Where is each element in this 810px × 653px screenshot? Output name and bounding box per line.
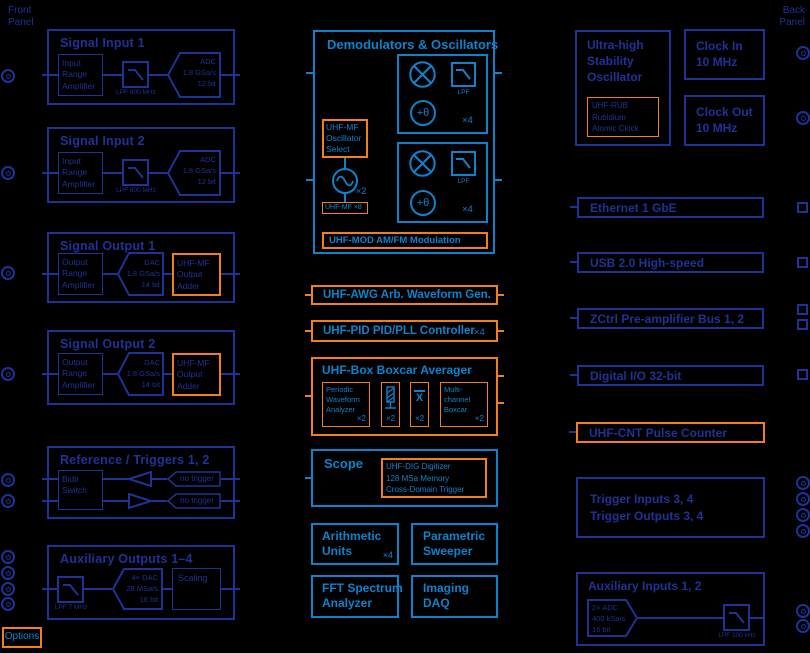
bnc-connector	[796, 604, 810, 618]
bnc-connector	[1, 69, 15, 83]
multichannel-boxcar-label: Multi- channel Boxcar	[444, 385, 470, 414]
bnc-connector	[796, 46, 810, 60]
amplifier-left-icon	[128, 471, 152, 487]
adc-label: ADC 1.8 GSa/s 12 bit	[176, 57, 216, 90]
square-connector	[797, 304, 808, 315]
wire	[42, 273, 58, 275]
wire-stub	[570, 317, 577, 319]
auxiliary-inputs-title: Auxiliary Inputs 1, 2	[588, 579, 701, 593]
wire-stub	[495, 179, 502, 181]
wire	[149, 172, 167, 174]
uhf-dig-label: UHF-DIG Digitizer 128 MSa Memory Cross-D…	[386, 461, 464, 496]
no-trigger-label: no trigger	[177, 474, 217, 483]
lowpass-filter-icon	[723, 604, 750, 631]
mixer-icon	[409, 61, 436, 88]
scope-title: Scope	[324, 456, 363, 471]
uhf-pid-multiplier: ×4	[474, 327, 485, 338]
lpf-600mhz-label: LPF 600 MHz	[108, 187, 164, 194]
lowpass-filter-icon	[122, 61, 149, 88]
mixer-icon	[409, 150, 436, 177]
wire	[152, 478, 167, 480]
wire	[103, 478, 128, 480]
average-multiplier: ×2	[410, 414, 429, 423]
wire-stub	[570, 374, 577, 376]
bnc-connector	[1, 473, 15, 487]
bnc-connector	[1, 566, 15, 580]
input-range-amplifier-label: Input Range Amplifier	[62, 58, 95, 92]
demod-multiplier: ×4	[462, 204, 473, 215]
bnc-connector	[1, 266, 15, 280]
wire	[221, 273, 240, 275]
scaling-label: Scaling	[178, 573, 208, 583]
bnc-connector	[1, 582, 15, 596]
ultra-high-stability-oscillator-title: Ultra-high Stability Oscillator	[587, 37, 644, 85]
wire-stub	[569, 431, 576, 433]
imaging-daq-label: Imaging DAQ	[423, 581, 469, 611]
wire	[152, 500, 167, 502]
no-trigger-label: no trigger	[177, 496, 217, 505]
wire-stub	[235, 74, 240, 76]
input-range-amplifier-label: Input Range Amplifier	[62, 156, 95, 190]
uhf-mf-output-adder-label: UHF-MF Output Adder	[177, 358, 210, 392]
pwa-multiplier: ×2	[322, 414, 366, 423]
wire-stub	[306, 179, 313, 181]
wire-stub	[305, 330, 311, 332]
bidir-switch-label: Bidir Switch	[62, 474, 87, 497]
wire	[221, 588, 240, 590]
lpf-7mhz-label: LPF 7 MHz	[43, 604, 99, 611]
wire	[344, 194, 346, 202]
uhf-cnt-label: UHF-CNT Pulse Counter	[589, 426, 727, 440]
uhf-pid-label: UHF-PID PID/PLL Controller	[323, 325, 475, 337]
wire-stub	[305, 477, 311, 479]
demodulators-oscillators-title: Demodulators & Oscillators	[327, 37, 498, 52]
phase-shift-icon: +θ	[410, 100, 436, 126]
average-icon: X	[412, 388, 427, 406]
lowpass-filter-icon	[122, 159, 149, 186]
wire	[103, 172, 122, 174]
adc-label: ADC 1.8 GSa/s 12 bit	[176, 155, 216, 188]
auxiliary-outputs-title: Auxiliary Outputs 1–4	[60, 552, 193, 566]
wire	[221, 478, 240, 480]
wire	[42, 500, 58, 502]
lpf-label: LPF	[447, 178, 480, 185]
options-label: Options	[2, 631, 42, 642]
arithmetic-multiplier: ×4	[365, 550, 393, 560]
aux-dac-label: 4× DAC 28 MSa/s 16 bit	[118, 573, 158, 606]
bnc-connector	[796, 111, 810, 125]
square-connector	[797, 369, 808, 380]
boxcar-gate-icon	[384, 386, 397, 412]
bnc-connector	[796, 492, 810, 506]
uhf-box-title: UHF-Box Boxcar Averager	[322, 363, 472, 377]
uhf-block-diagram: Front Panel Back Panel Signal Input 1 In…	[0, 0, 810, 653]
dac-label: DAC 1.8 GSa/s 14 bit	[124, 258, 160, 291]
wire-stub	[570, 261, 577, 263]
bnc-connector	[796, 476, 810, 490]
dac-label: DAC 1.8 GSa/s 14 bit	[124, 358, 160, 391]
wire-stub	[498, 294, 504, 296]
wire	[221, 373, 240, 375]
back-panel-label: Back Panel	[779, 5, 805, 29]
oscillator-multiplier: ×2	[356, 186, 366, 196]
parametric-sweeper-label: Parametric Sweeper	[423, 529, 485, 559]
periodic-waveform-analyzer-label: Periodic Waveform Analyzer	[326, 385, 360, 414]
bnc-connector	[1, 367, 15, 381]
uhf-mf-oscillator-select-label: UHF-MF Oscillator Select	[326, 122, 361, 155]
uhf-mf-x8-label: UHF-MF ×8	[325, 204, 362, 211]
square-connector	[797, 319, 808, 330]
reference-triggers-title: Reference / Triggers 1, 2	[60, 453, 210, 467]
wire-stub	[570, 206, 577, 208]
clock-in-label: Clock In 10 MHz	[696, 38, 743, 70]
clock-out-label: Clock Out 10 MHz	[696, 104, 753, 136]
demod-multiplier: ×4	[462, 115, 473, 126]
signal-input-1-title: Signal Input 1	[60, 36, 145, 50]
uhf-awg-label: UHF-AWG Arb. Waveform Gen.	[323, 289, 491, 301]
wire	[103, 273, 117, 275]
wire	[103, 373, 117, 375]
wire	[42, 373, 58, 375]
wire	[42, 74, 58, 76]
amplifier-right-icon	[128, 493, 152, 509]
wire	[149, 74, 167, 76]
lpf-label: LPF	[447, 89, 480, 96]
phase-shift-icon: +θ	[410, 190, 436, 216]
wire	[42, 478, 58, 480]
bnc-connector	[796, 619, 810, 633]
zctrl-label: ZCtrl Pre-amplifier Bus 1, 2	[590, 312, 744, 326]
bnc-connector	[1, 550, 15, 564]
wire-stub	[306, 72, 313, 74]
lpf-600mhz-label: LPF 600 MHz	[108, 89, 164, 96]
wire	[103, 500, 128, 502]
bnc-connector	[1, 166, 15, 180]
wire	[42, 172, 58, 174]
oscillator-icon	[332, 168, 358, 194]
signal-input-2-title: Signal Input 2	[60, 134, 145, 148]
lpf-100khz-label: LPF 100 kHz	[706, 632, 768, 639]
wire-stub	[498, 402, 504, 404]
signal-output-1-title: Signal Output 1	[60, 239, 155, 253]
wire	[221, 500, 240, 502]
wire	[638, 617, 723, 619]
trigger-io-label: Trigger Inputs 3, 4 Trigger Outputs 3, 4	[590, 491, 703, 525]
digital-io-label: Digital I/O 32-bit	[590, 369, 681, 383]
wire	[42, 588, 57, 590]
uhf-mf-output-adder-label: UHF-MF Output Adder	[177, 258, 210, 292]
square-connector	[797, 202, 808, 213]
wire	[164, 273, 172, 275]
output-range-amplifier-label: Output Range Amplifier	[62, 357, 95, 391]
uhf-mod-label: UHF-MOD AM/FM Modulation	[329, 235, 461, 246]
bnc-connector	[796, 524, 810, 538]
uhf-rub-label: UHF-RUB Rubidium Atomic Clock	[592, 100, 639, 135]
lowpass-filter-icon	[451, 151, 476, 176]
signal-output-2-title: Signal Output 2	[60, 337, 155, 351]
aux-adc-label: 2× ADC 400 kSa/s 16 bit	[592, 603, 632, 636]
wire	[164, 373, 172, 375]
wire-stub	[495, 72, 502, 74]
front-panel-label: Front Panel	[8, 5, 34, 29]
lowpass-filter-icon	[57, 576, 84, 603]
wire-stub	[498, 330, 504, 332]
lowpass-filter-icon	[451, 62, 476, 87]
bnc-connector	[1, 494, 15, 508]
bnc-connector	[796, 508, 810, 522]
wire-stub	[305, 294, 311, 296]
ethernet-label: Ethernet 1 GbE	[590, 201, 677, 215]
wire-stub	[305, 395, 311, 397]
fft-spectrum-analyzer-label: FFT Spectrum Analyzer	[322, 581, 403, 611]
wire-stub	[498, 375, 504, 377]
usb-label: USB 2.0 High-speed	[590, 256, 704, 270]
gate-multiplier: ×2	[381, 414, 400, 423]
wire-stub	[235, 172, 240, 174]
bnc-connector	[1, 597, 15, 611]
wire	[84, 588, 112, 590]
output-range-amplifier-label: Output Range Amplifier	[62, 257, 95, 291]
wire	[344, 158, 346, 168]
wire	[750, 617, 764, 619]
multichannel-multiplier: ×2	[440, 414, 484, 423]
wire	[163, 588, 172, 590]
wire	[103, 74, 122, 76]
square-connector	[797, 257, 808, 268]
